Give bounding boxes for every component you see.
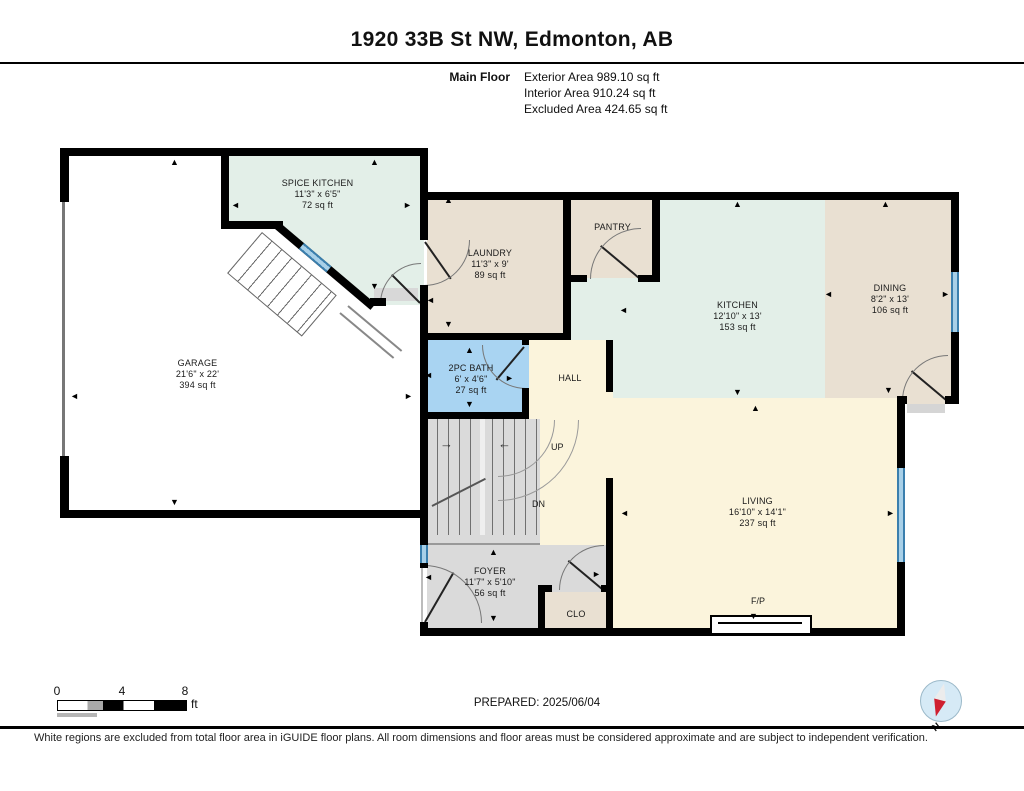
dimension-arrow-down-icon: ▼: [444, 320, 453, 329]
wall: [60, 456, 69, 518]
scale-tick-4: 4: [116, 684, 128, 698]
stairs-down-label: DN: [532, 499, 545, 509]
room-label-dining: DINING8'2" x 13'106 sq ft: [835, 283, 945, 316]
wall: [563, 192, 571, 340]
fireplace-hearth-line: [718, 622, 802, 624]
dimension-arrow-left-icon: ◄: [619, 306, 628, 315]
room-label-closet: CLO: [548, 609, 604, 620]
dimension-arrow-down-icon: ▼: [749, 612, 758, 621]
scale-unit-label: ft: [191, 697, 198, 711]
wall: [945, 396, 959, 404]
dimension-arrow-left-icon: ◄: [70, 392, 79, 401]
room-label-spice-kitchen: SPICE KITCHEN11'3" x 6'5"72 sq ft: [250, 178, 385, 211]
dimension-arrow-left-icon: ◄: [231, 201, 240, 210]
dimension-arrow-up-icon: ▲: [370, 158, 379, 167]
stair-up-arrow-icon: →: [440, 436, 453, 451]
wall: [897, 562, 905, 636]
wall: [638, 275, 660, 282]
stat-excluded-area: Excluded Area 424.65 sq ft: [524, 102, 784, 116]
room-label-hall: HALL: [535, 373, 605, 384]
wall: [951, 192, 959, 272]
dimension-arrow-down-icon: ▼: [370, 282, 379, 291]
scale-bar: [57, 700, 187, 711]
page-title: 1920 33B St NW, Edmonton, AB: [0, 28, 1024, 52]
dimension-arrow-up-icon: ▲: [465, 346, 474, 355]
room-label-bath: 2PC BATH6' x 4'6"27 sq ft: [427, 363, 515, 396]
dimension-arrow-down-icon: ▼: [733, 388, 742, 397]
wall: [428, 192, 958, 200]
dimension-arrow-right-icon: ►: [592, 570, 601, 579]
stair-landing-line: [427, 543, 540, 545]
dimension-arrow-down-icon: ▼: [170, 498, 179, 507]
dimension-arrow-left-icon: ◄: [426, 296, 435, 305]
wall: [60, 148, 69, 202]
wall: [221, 148, 229, 229]
stat-exterior-area: Exterior Area 989.10 sq ft: [524, 70, 784, 84]
wall: [420, 333, 570, 340]
window: [420, 545, 428, 563]
stat-interior-area: Interior Area 910.24 sq ft: [524, 86, 784, 100]
wall: [60, 148, 428, 156]
dimension-arrow-down-icon: ▼: [465, 400, 474, 409]
disclaimer-text: White regions are excluded from total fl…: [34, 732, 994, 744]
wall: [60, 510, 428, 518]
scale-tick-8: 8: [179, 684, 191, 698]
dimension-arrow-right-icon: ►: [403, 201, 412, 210]
dimension-arrow-right-icon: ►: [941, 290, 950, 299]
dimension-arrow-right-icon: ►: [404, 392, 413, 401]
fireplace-label: F/P: [740, 596, 776, 606]
dimension-arrow-right-icon: ►: [886, 509, 895, 518]
scale-tick-0: 0: [51, 684, 63, 698]
wall: [601, 585, 613, 592]
room-label-kitchen: KITCHEN12'10" x 13'153 sq ft: [680, 300, 795, 333]
floor-label: Main Floor: [350, 70, 510, 84]
room-label-foyer: FOYER11'7" x 5'10"56 sq ft: [435, 566, 545, 599]
dimension-arrow-up-icon: ▲: [444, 196, 453, 205]
scale-bar-secondary: [57, 713, 97, 717]
wall: [606, 340, 613, 392]
dimension-arrow-right-icon: ►: [505, 374, 514, 383]
wall: [420, 563, 428, 568]
wall: [420, 148, 428, 240]
wall: [897, 396, 905, 468]
wall: [522, 333, 529, 345]
room-label-pantry: PANTRY: [570, 222, 655, 233]
header-divider: [0, 62, 1024, 64]
room-label-living: LIVING16'10" x 14'1"237 sq ft: [700, 496, 815, 529]
dimension-arrow-left-icon: ◄: [620, 509, 629, 518]
window: [897, 468, 905, 562]
wall: [951, 332, 959, 404]
wall: [370, 298, 386, 306]
dimension-arrow-up-icon: ▲: [489, 548, 498, 557]
dimension-arrow-left-icon: ◄: [424, 573, 433, 582]
door-opening-line: [421, 567, 423, 622]
footer-divider: [0, 726, 1024, 729]
garage-door-line: [62, 202, 65, 456]
room-label-laundry: LAUNDRY11'3" x 9'89 sq ft: [435, 248, 545, 281]
dimension-arrow-up-icon: ▲: [751, 404, 760, 413]
wall: [420, 412, 529, 419]
stairs-up-label: UP: [551, 442, 564, 452]
dimension-arrow-up-icon: ▲: [170, 158, 179, 167]
wall: [652, 192, 660, 282]
wall: [606, 478, 613, 636]
dimension-arrow-down-icon: ▼: [884, 386, 893, 395]
dimension-arrow-left-icon: ◄: [424, 371, 433, 380]
wall: [565, 275, 587, 282]
dimension-arrow-left-icon: ◄: [824, 290, 833, 299]
room-label-garage: GARAGE21'6" x 22'394 sq ft: [130, 358, 265, 391]
wall: [420, 628, 905, 636]
fireplace-hearth: [710, 615, 812, 635]
dimension-arrow-up-icon: ▲: [881, 200, 890, 209]
floor-plan-page: 1920 33B St NW, Edmonton, AB Main Floor …: [0, 0, 1024, 791]
window: [951, 272, 959, 332]
dimension-arrow-up-icon: ▲: [733, 200, 742, 209]
prepared-date: PREPARED: 2025/06/04: [427, 697, 647, 709]
dimension-arrow-down-icon: ▼: [489, 614, 498, 623]
exterior-step: [907, 404, 945, 413]
